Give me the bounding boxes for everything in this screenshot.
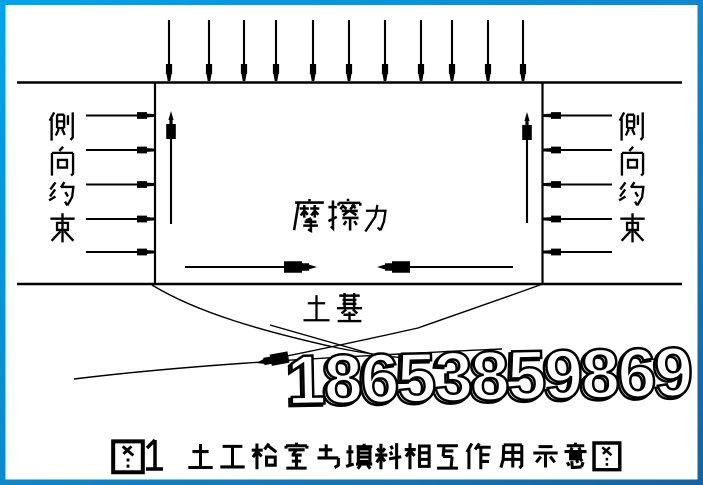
svg-text:18653859869: 18653859869 (286, 333, 692, 419)
